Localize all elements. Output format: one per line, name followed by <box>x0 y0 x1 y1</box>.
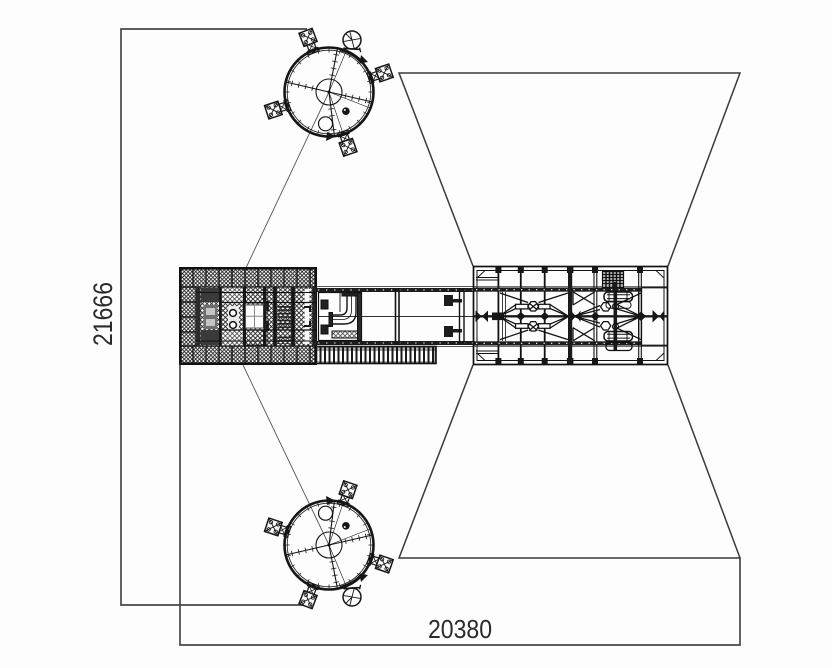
svg-text:21666: 21666 <box>88 282 118 346</box>
svg-text:20380: 20380 <box>428 614 492 644</box>
